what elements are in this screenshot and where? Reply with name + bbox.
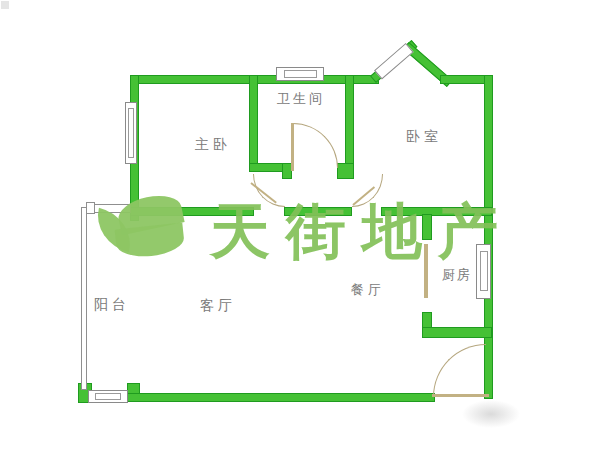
bathroom-top-window-sill (284, 70, 317, 78)
entrance-door-arc (433, 344, 486, 397)
wall-bathroom-bedroom-divider (345, 75, 354, 172)
balcony-bottom-window-sill (95, 393, 121, 400)
floorplan-image: 天街地产 主卧 卫生间 卧室 阳台 客厅 餐厅 厨房 (0, 0, 600, 450)
entry-shadow-artifact (462, 400, 520, 428)
corner-artifact (1, 1, 9, 9)
wall-balcony-living-stub (127, 383, 140, 394)
bedroom-diagonal-window (374, 43, 414, 80)
balcony-rail-cap (86, 202, 95, 214)
room-label-living-room: 客厅 (200, 297, 236, 315)
room-label-balcony: 阳台 (94, 296, 130, 314)
room-label-bedroom: 卧室 (406, 128, 442, 146)
room-label-kitchen: 厨房 (442, 266, 472, 284)
room-label-bathroom: 卫生间 (277, 90, 325, 108)
watermark-leaf-icon (115, 223, 186, 260)
watermark-text: 天街地产 (210, 202, 514, 262)
wall-bottom (125, 393, 435, 402)
room-label-dining-room: 餐厅 (351, 281, 385, 299)
entrance-door-leaf (432, 394, 489, 397)
master-bedroom-window-sill (128, 108, 134, 158)
bathroom-door-arc (293, 123, 338, 168)
room-label-master-bedroom: 主卧 (195, 136, 231, 154)
wall-master-bathroom-divider (249, 75, 258, 172)
balcony-rail-left (81, 207, 87, 390)
bathroom-door-leaf (291, 123, 294, 171)
wall-kitchen-bottom (422, 327, 492, 338)
